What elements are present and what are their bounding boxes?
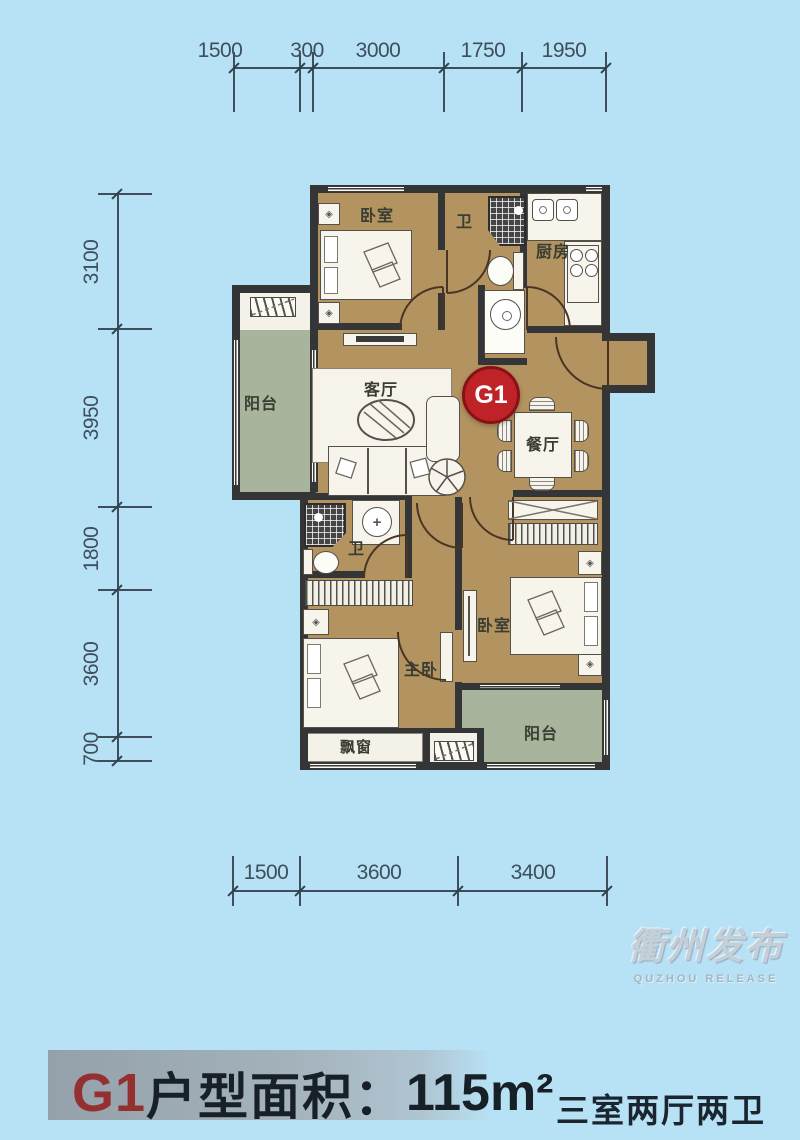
dining-chair <box>497 420 512 442</box>
armchair <box>426 396 460 462</box>
watermark-english: QUZHOU RELEASE <box>616 973 796 985</box>
dim-label: 1500 <box>226 862 306 884</box>
bathroom-sink: + <box>362 507 392 537</box>
pillow <box>324 267 338 294</box>
room-label-master: 主卧 <box>404 662 438 680</box>
dim-extension <box>605 52 607 112</box>
unit-badge: G1 <box>462 366 520 424</box>
closet-icon <box>434 741 474 761</box>
cabinet-crossed <box>508 500 598 520</box>
pillow <box>584 616 598 646</box>
nightstand <box>303 609 329 635</box>
wall <box>477 728 484 770</box>
wall <box>438 193 445 250</box>
dim-label: 300 <box>277 40 337 62</box>
dim-line <box>117 194 119 761</box>
wall <box>300 728 430 733</box>
dim-extension <box>98 506 152 508</box>
pillow <box>307 678 321 708</box>
window <box>603 700 609 755</box>
room-label-bay-window: 飘窗 <box>340 740 372 757</box>
dim-label: 3100 <box>81 232 103 292</box>
layout-type: 三室两厅两卫 <box>556 1084 766 1132</box>
kitchen-sink <box>532 199 554 221</box>
wardrobe <box>305 580 413 606</box>
dim-label: 3000 <box>348 40 408 62</box>
nightstand <box>318 203 340 225</box>
caption-area-label: 户型面积： <box>146 1057 406 1129</box>
pillow <box>324 236 338 263</box>
wall <box>527 326 610 333</box>
toilet-tank <box>303 549 313 575</box>
room-label-kitchen: 厨房 <box>536 244 570 262</box>
tv <box>356 336 404 342</box>
nightstand <box>578 551 602 575</box>
toilet-tank <box>513 252 524 290</box>
door-leaf <box>440 632 453 682</box>
wall <box>602 185 610 333</box>
pillow <box>584 582 598 612</box>
washing-machine <box>484 290 525 354</box>
dining-chair <box>529 397 555 411</box>
unit-badge-label: G1 <box>474 381 507 410</box>
toilet <box>313 551 339 574</box>
floor-entry-alcove <box>608 341 649 387</box>
wall <box>610 385 655 393</box>
dim-label: 3950 <box>81 388 103 448</box>
area-caption: G1 户型面积： 115m² <box>72 1058 554 1128</box>
wall <box>478 358 527 365</box>
sofa-divider <box>405 448 407 494</box>
dim-extension <box>98 328 152 330</box>
room-label-bath-top: 卫 <box>456 214 473 232</box>
dining-chair <box>574 450 589 472</box>
stove-burner <box>585 249 598 262</box>
dim-extension <box>521 52 523 112</box>
dim-line <box>234 67 606 69</box>
wall <box>318 323 402 330</box>
kitchen-sink <box>556 199 578 221</box>
balcony-left-floor <box>232 330 310 500</box>
window <box>328 186 404 192</box>
balcony-slider-door <box>480 684 560 689</box>
dim-label: 1750 <box>453 40 513 62</box>
dim-label: 700 <box>81 719 103 779</box>
dim-extension <box>606 856 608 906</box>
toilet <box>487 256 514 286</box>
dim-extension <box>443 52 445 112</box>
dim-extension <box>98 736 152 738</box>
room-label-living: 客厅 <box>364 382 398 400</box>
dining-chair <box>574 420 589 442</box>
dim-label: 1500 <box>190 40 250 62</box>
slim-cabinet <box>463 590 477 662</box>
nightstand <box>318 302 340 324</box>
dim-extension <box>98 760 152 762</box>
closet-icon <box>250 297 296 317</box>
stove-burner <box>570 249 583 262</box>
room-label-bedroom-right: 卧室 <box>477 618 511 636</box>
wall <box>438 293 445 330</box>
wall <box>423 728 430 770</box>
wall <box>310 185 318 293</box>
room-label-dining: 餐厅 <box>526 437 560 455</box>
floor-plan-scene: 1500 300 3000 1750 1950 3100 3950 1800 3… <box>0 0 800 1140</box>
room-label-bath-lower: 卫 <box>348 541 365 559</box>
dim-label: 3400 <box>493 862 573 884</box>
window <box>586 186 602 192</box>
wall <box>602 333 655 341</box>
watermark: 衢州发布 QUZHOU RELEASE <box>616 916 796 985</box>
slim-cabinet-line <box>468 596 470 656</box>
sofa-divider <box>367 448 369 494</box>
window <box>487 763 595 769</box>
dim-label: 1950 <box>534 40 594 62</box>
dining-chair <box>529 477 555 491</box>
room-label-bedroom-top: 卧室 <box>360 208 394 226</box>
caption-unit: G1 <box>72 1062 146 1124</box>
wardrobe <box>508 523 598 545</box>
dim-line <box>233 890 607 892</box>
dining-chair <box>497 450 512 472</box>
dim-extension <box>98 589 152 591</box>
nightstand <box>578 652 602 676</box>
room-label-balcony-left: 阳台 <box>244 396 278 414</box>
dim-extension <box>98 193 152 195</box>
dim-extension <box>457 856 459 906</box>
wall <box>455 497 462 630</box>
wall <box>513 490 610 497</box>
room-label-balcony-bottom: 阳台 <box>524 726 558 744</box>
dim-label: 3600 <box>81 634 103 694</box>
watermark-chinese: 衢州发布 <box>616 916 796 970</box>
window <box>233 340 239 485</box>
stove-burner <box>585 264 598 277</box>
dim-label: 1800 <box>81 519 103 579</box>
wall <box>405 500 412 578</box>
stove-burner <box>570 264 583 277</box>
pillow <box>307 644 321 674</box>
wall <box>232 285 318 293</box>
dim-label: 3600 <box>339 862 419 884</box>
window <box>310 763 416 769</box>
wall <box>423 728 484 733</box>
caption-area-value: 115m² <box>406 1063 553 1123</box>
